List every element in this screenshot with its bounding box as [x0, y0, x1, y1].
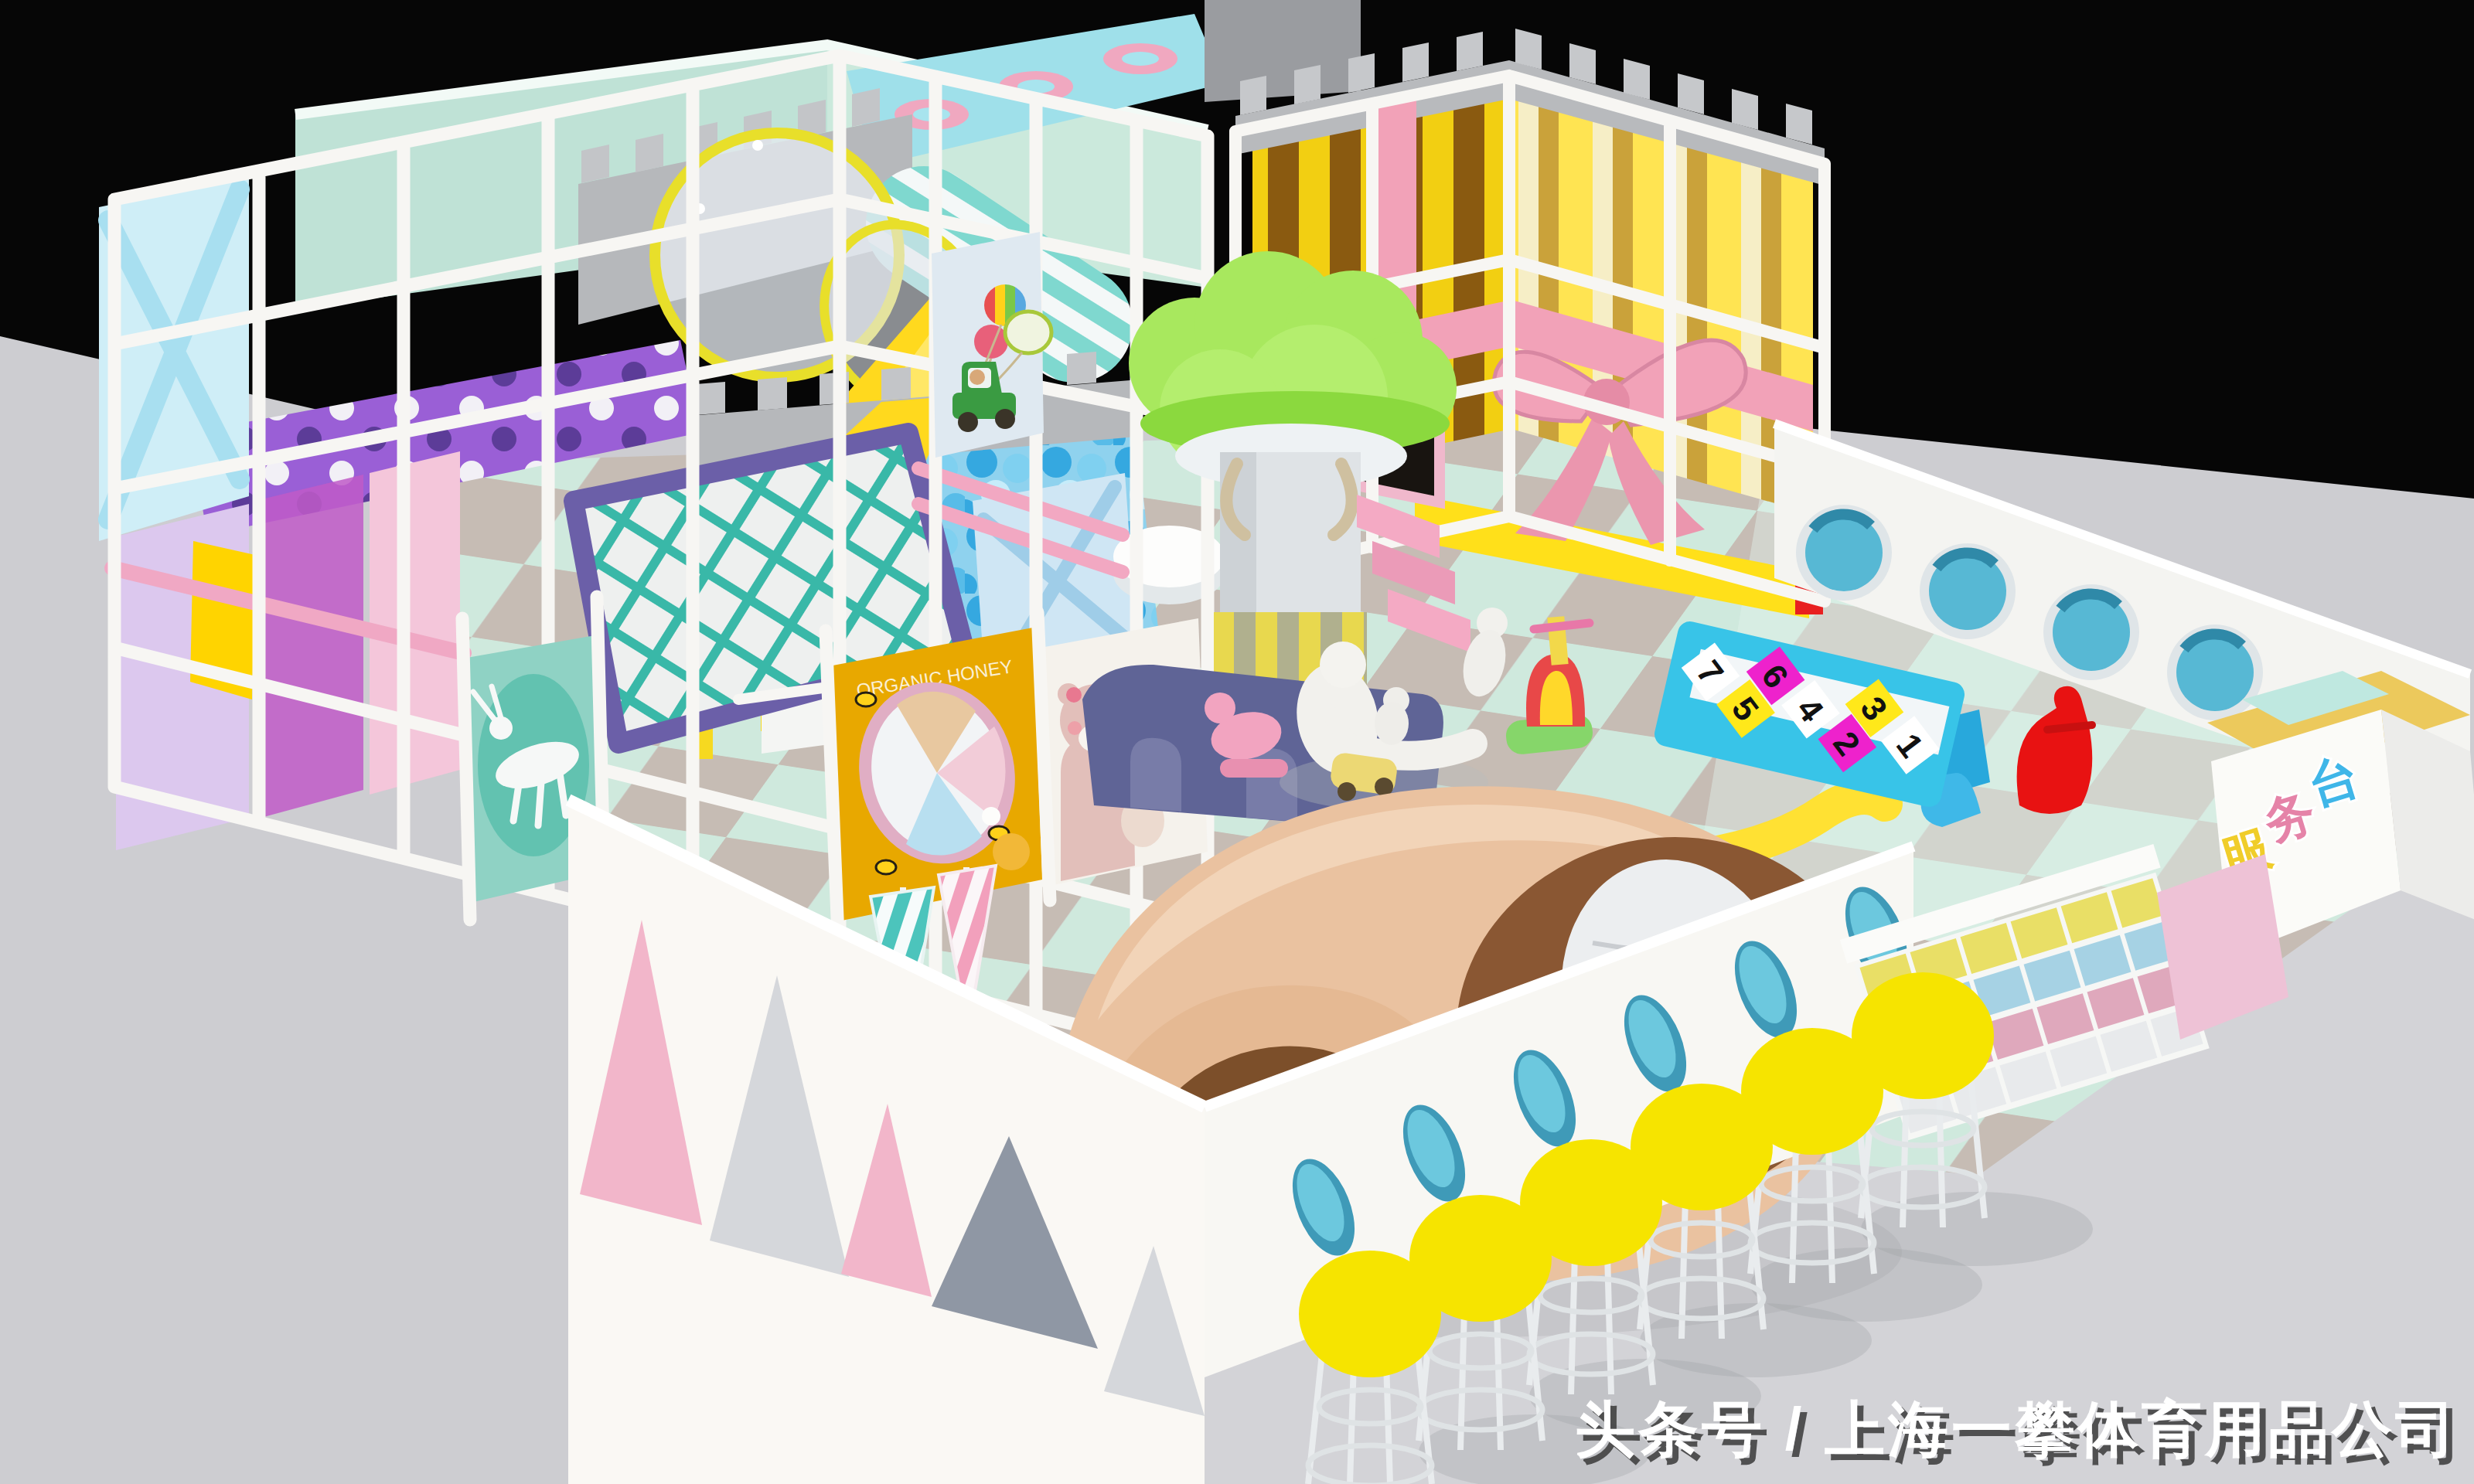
- watermark: 头条号 / 上海一攀体育用品公司 头条号 / 上海一攀体育用品公司: [1575, 1395, 2465, 1469]
- stool-seat: [1299, 1251, 1441, 1377]
- tube-rivet: [752, 140, 763, 151]
- honey-drop: [993, 833, 1030, 870]
- scene-canvas: ORGANIC HONEY: [0, 0, 2474, 1484]
- pony-head: [1205, 693, 1235, 723]
- bee: [876, 860, 896, 874]
- mannequin-head: [1320, 642, 1366, 688]
- balloon-stripe: [995, 284, 1005, 326]
- car-wheel: [1338, 782, 1356, 801]
- bunny-driver: [969, 369, 985, 385]
- pink-ring-hole: [1122, 52, 1159, 66]
- truck-wheel: [995, 409, 1015, 429]
- gray-block-tower: [1205, 0, 1361, 102]
- truck-poster: [932, 232, 1051, 458]
- daisy: [982, 807, 1000, 825]
- truck-wheel: [958, 412, 978, 432]
- rocker-handle: [2047, 725, 2092, 730]
- bee: [856, 693, 876, 706]
- pink-balloon: [974, 325, 1008, 359]
- pink-panel: [370, 451, 460, 795]
- watermark-text: 头条号 / 上海一攀体育用品公司: [1575, 1395, 2459, 1463]
- flower-accessory: [1066, 687, 1082, 703]
- pony-base: [1220, 759, 1288, 778]
- playground-render: ORGANIC HONEY: [0, 0, 2474, 1484]
- magenta-panel: [255, 475, 363, 819]
- honey-mirror-panel: ORGANIC HONEY: [829, 628, 1042, 921]
- mannequin-body: [1375, 702, 1409, 745]
- arch-opening: [1130, 738, 1181, 812]
- bear-cheek: [1068, 721, 1082, 735]
- green-balloon: [1005, 311, 1051, 353]
